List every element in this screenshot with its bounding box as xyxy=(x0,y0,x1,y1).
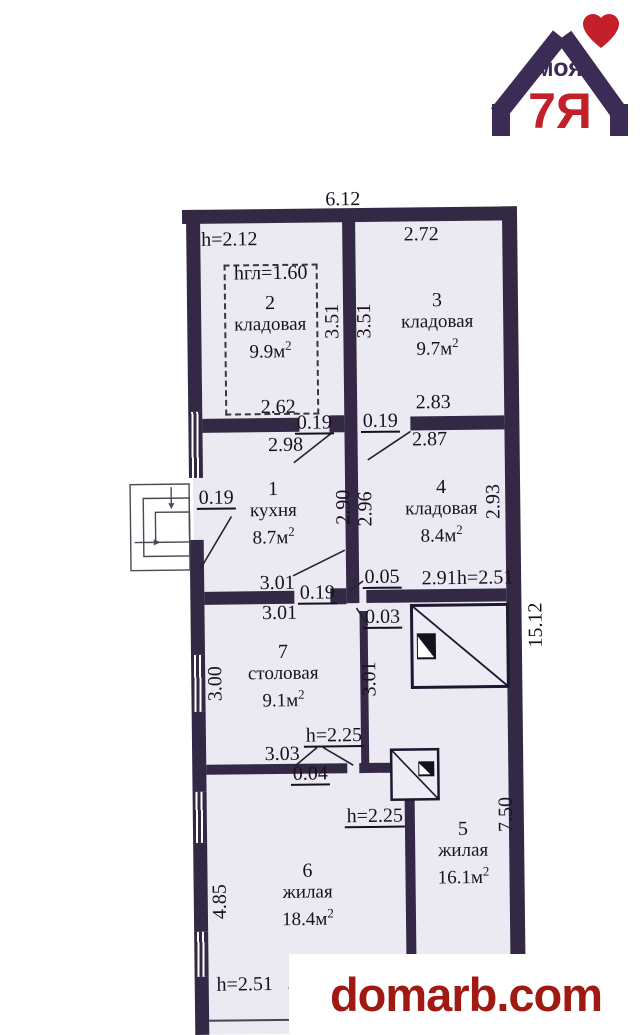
dimension-label: 2.91 xyxy=(422,568,457,588)
dimension-label: 4.85 xyxy=(210,884,230,919)
dimension-label: 0.04 xyxy=(291,763,330,785)
dimension-label: hгл=1.60 xyxy=(234,263,308,284)
dimension-label: 2.93 xyxy=(483,484,503,519)
dimension-label: 3.01 xyxy=(260,573,295,593)
floor-plan-image: моя 7Я xyxy=(0,0,643,1035)
floor-plan: 2кладовая9.9м23кладовая9.7м21кухня8.7м24… xyxy=(0,0,643,1035)
dimension-label: 3.01 xyxy=(262,603,297,623)
dimension-label: h=2.25 xyxy=(304,725,365,748)
dimension-label: 0.19 xyxy=(361,411,400,433)
room-label: 7столовая9.1м2 xyxy=(248,642,319,712)
room-label: 2кладовая9.9м2 xyxy=(234,293,307,363)
dimension-label: 6.12 xyxy=(325,189,360,209)
dimension-label: 0.19 xyxy=(295,412,334,434)
dimension-label: 2.90 xyxy=(333,490,353,525)
dimension-label: 2.98 xyxy=(268,435,303,455)
stove-icon xyxy=(411,604,508,687)
dimension-label: 3.01 xyxy=(359,661,379,696)
room-label: 5жилая16.1м2 xyxy=(437,819,490,889)
dimension-label: h=2.25 xyxy=(345,806,406,829)
dimension-label: 2.62 xyxy=(261,397,296,417)
stove-icon xyxy=(391,749,439,800)
dimension-label: 0.19 xyxy=(197,487,236,509)
dimension-label: 3.51 xyxy=(354,303,374,338)
room-label: 4кладовая8.4м2 xyxy=(405,477,478,547)
dimension-label: 15.12 xyxy=(525,602,546,647)
arrow-icon xyxy=(168,503,174,509)
dimension-label: 0.03 xyxy=(363,607,402,629)
dimension-label: 3.03 xyxy=(265,744,300,764)
dimension-label: 2.87 xyxy=(412,429,447,449)
watermark-text: domarb.com xyxy=(330,967,602,1022)
room-label: 6жилая18.4м2 xyxy=(281,860,334,930)
dimension-label: 3.00 xyxy=(205,666,225,701)
porch-steps-icon xyxy=(130,484,190,571)
dimension-label: h=2.51 xyxy=(457,567,514,588)
arrow-icon xyxy=(154,539,161,545)
dimension-label: 0.05 xyxy=(363,567,402,589)
dimension-label: 0.19 xyxy=(298,582,337,604)
dimension-label: 2.72 xyxy=(404,224,439,244)
dimension-label: 3.51 xyxy=(322,304,342,339)
dimension-label: 2.96 xyxy=(355,491,375,526)
dimension-label: h=2.12 xyxy=(201,229,258,250)
room-label: 3кладовая9.7м2 xyxy=(401,290,474,360)
room-label: 1кухня8.7м2 xyxy=(250,479,298,549)
dimension-label: h=2.51 xyxy=(216,974,273,995)
dimension-label: 7.50 xyxy=(496,797,516,832)
watermark: domarb.com xyxy=(289,954,643,1035)
dimension-label: 2.83 xyxy=(416,392,451,412)
